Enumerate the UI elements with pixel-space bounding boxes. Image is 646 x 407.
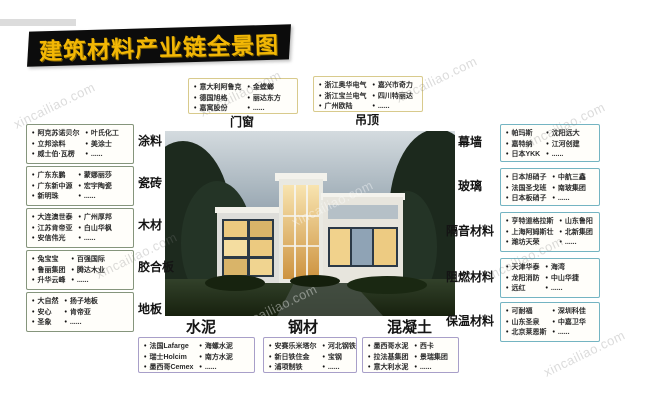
glass-box: •日本旭硝子•法国圣戈班•日本板硝子 •中航三鑫•南玻集团•...... [500,168,600,206]
company-name: 墨西哥水泥 [373,342,408,353]
company-item: •上海阿姆斯壮 [506,228,553,239]
company-item: •日本板硝子 [506,194,546,205]
bullet-icon: • [368,342,370,353]
ceiling-box: •浙江奥华电气•浙江宝兰电气•广州欧陆 •嘉兴市奇力•四川特丽达•...... [313,76,423,112]
bullet-icon: • [372,81,374,92]
bullet-icon: • [506,307,508,318]
company-item: •美涂士 [85,140,118,151]
company-item: •安心 [32,308,58,319]
category-label-coatings: 涂料 [138,132,162,149]
company-item: •远红 [506,284,539,295]
company-item: •广州厚邦 [78,213,111,224]
company-list: •海湾•中山华捷•...... [545,263,578,295]
company-list: •兔宝宝•鲁丽集团•升华云峰 [32,255,65,287]
bullet-icon: • [506,150,508,161]
company-list: •沈阳远大•江河创建•...... [546,129,579,161]
company-item: •深圳科佳 [552,307,585,318]
bullet-icon: • [78,182,80,193]
bullet-icon: • [269,342,271,353]
bullet-icon: • [368,353,370,364]
bullet-icon: • [552,194,554,205]
bullet-icon: • [545,274,547,285]
company-name: ...... [77,276,89,287]
company-list: •可耐福•山东圣泉•北京莱恩斯 [506,307,546,339]
company-name: ...... [84,234,96,245]
company-name: 瑞士Holcim [149,353,186,364]
company-item: •...... [78,234,111,245]
company-name: 浙江宝兰电气 [324,92,366,103]
bullet-icon: • [71,255,73,266]
company-name: 浦项制铁 [274,363,302,374]
plywood-box: •兔宝宝•鲁丽集团•升华云峰 •百强国际•腾达木业•...... [26,250,134,290]
company-name: 法国圣戈班 [511,184,546,195]
company-item: •安赛乐米塔尔 [269,342,316,353]
bullet-icon: • [506,228,508,239]
company-list: •西卡•景瑞集团•...... [414,342,447,374]
bullet-icon: • [559,228,561,239]
company-name: 浙江奥华电气 [324,81,366,92]
company-item: •...... [559,238,592,249]
bullet-icon: • [552,328,554,339]
bullet-icon: • [414,363,416,374]
company-list: •法国Lafarge•瑞士Holcim•墨西哥Cemex [144,342,193,374]
company-item: •...... [545,284,578,295]
company-name: 江河创建 [552,140,580,151]
bullet-icon: • [269,353,271,364]
flooring-box: •大自然•安心•圣象 •扬子地板•肯帝亚•...... [26,292,134,332]
bullet-icon: • [552,184,554,195]
bullet-icon: • [506,318,508,329]
category-label-flooring: 地板 [138,300,162,317]
company-item: •河北钢铁 [322,342,355,353]
bullet-icon: • [78,224,80,235]
company-item: •宏宇陶瓷 [78,182,111,193]
company-item: •墨西哥水泥 [368,342,408,353]
company-name: 兔宝宝 [37,255,58,266]
company-item: •瑞士Holcim [144,353,193,364]
bullet-icon: • [368,363,370,374]
company-item: •墨西哥Cemex [144,363,193,374]
company-item: •可耐福 [506,307,546,318]
company-item: •兔宝宝 [32,255,65,266]
company-name: 蒙娜丽莎 [84,171,112,182]
company-item: •扬子地板 [64,297,97,308]
bullet-icon: • [322,363,324,374]
company-name: ...... [558,328,570,339]
category-label-tiles: 瓷砖 [138,174,162,191]
company-name: 腾达木业 [77,266,105,277]
bullet-icon: • [559,238,561,249]
company-list: •嘉兴市奇力•四川特丽达•...... [372,81,412,113]
company-name: 可耐福 [511,307,532,318]
bullet-icon: • [32,140,34,151]
company-list: •大自然•安心•圣象 [32,297,58,329]
company-item: •...... [78,192,111,203]
company-item: •阿克苏诺贝尔 [32,129,79,140]
company-name: 宝钢 [328,353,342,364]
category-label-ceiling: 吊顶 [355,111,379,128]
company-name: 南玻集团 [558,184,586,195]
company-name: 意大利阿鲁克 [199,83,241,94]
company-item: •...... [546,150,579,161]
wood-box: •大连澳世泰•江苏肯帝亚•安信伟光 •广州厚邦•白山华枫•...... [26,208,134,248]
company-name: 宏宇陶瓷 [84,182,112,193]
company-name: ...... [91,150,103,161]
bullet-icon: • [71,276,73,287]
bullet-icon: • [506,184,508,195]
bullet-icon: • [78,234,80,245]
company-name: 海螺水泥 [205,342,233,353]
company-item: •...... [64,318,97,329]
company-name: 沈阳远大 [552,129,580,140]
company-item: •拉法基集团 [368,353,408,364]
company-list: •金螳螂•丽达东方•...... [247,83,280,115]
company-name: 南方水泥 [205,353,233,364]
company-name: 北新集团 [565,228,593,239]
company-name: 新明珠 [37,192,58,203]
company-item: •立邦涂料 [32,140,79,151]
company-item: •意大利阿鲁克 [194,83,241,94]
company-name: 安心 [37,308,51,319]
bullet-icon: • [199,342,201,353]
company-name: 圣象 [37,318,51,329]
bullet-icon: • [64,308,66,319]
company-item: •意大利水泥 [368,363,408,374]
company-item: •德国旭格 [194,94,241,105]
company-name: 安信伟光 [37,234,65,245]
bullet-icon: • [372,92,374,103]
bullet-icon: • [32,308,34,319]
bullet-icon: • [506,217,508,228]
company-item: •嘉特纳 [506,140,540,151]
company-item: •中嘉卫华 [552,318,585,329]
bullet-icon: • [32,224,34,235]
bullet-icon: • [414,353,416,364]
company-name: 嘉寓股份 [199,104,227,115]
company-list: •大连澳世泰•江苏肯帝亚•安信伟光 [32,213,72,245]
company-name: 潍坊天荣 [511,238,539,249]
company-item: •广东东鹏 [32,171,72,182]
company-list: •广州厚邦•白山华枫•...... [78,213,111,245]
steel-box: •安赛乐米塔尔•新日铁住金•浦项制铁 •河北钢铁•宝钢•...... [263,337,357,373]
bullet-icon: • [506,194,508,205]
bullet-icon: • [545,284,547,295]
company-name: 升华云峰 [37,276,65,287]
bullet-icon: • [71,266,73,277]
company-item: •广东新中源 [32,182,72,193]
company-item: •百强国际 [71,255,104,266]
company-name: ...... [328,363,340,374]
company-name: 德国旭格 [199,94,227,105]
bullet-icon: • [552,318,554,329]
company-name: 立邦涂料 [37,140,65,151]
company-name: 嘉兴市奇力 [378,81,413,92]
company-list: •帕玛斯•嘉特纳•日本YKK [506,129,540,161]
category-label-cement: 水泥 [186,316,216,337]
company-name: 上海阿姆斯壮 [511,228,553,239]
page-title: 建筑材料产业链全景图 [39,25,280,66]
bullet-icon: • [506,140,508,151]
bullet-icon: • [247,83,249,94]
company-item: •江苏肯帝亚 [32,224,72,235]
company-item: •山东圣泉 [506,318,546,329]
bullet-icon: • [559,217,561,228]
company-name: ...... [378,102,390,113]
company-name: ...... [253,104,265,115]
company-item: •法国圣戈班 [506,184,546,195]
company-name: ...... [84,192,96,203]
company-name: ...... [565,238,577,249]
bullet-icon: • [546,150,548,161]
company-name: 新日铁住金 [274,353,309,364]
category-label-concrete: 混凝土 [387,316,432,337]
company-item: •安信伟光 [32,234,72,245]
company-name: 中山华捷 [551,274,579,285]
bullet-icon: • [552,307,554,318]
company-item: •威士伯·瓦楞 [32,150,79,161]
company-name: 河北钢铁 [328,342,356,353]
category-label-glass: 玻璃 [458,177,482,194]
company-item: •...... [552,194,585,205]
company-item: •...... [71,276,104,287]
company-item: •...... [199,363,232,374]
company-item: •南玻集团 [552,184,585,195]
company-item: •沈阳远大 [546,129,579,140]
category-label-plywood: 胶合板 [138,258,174,275]
bullet-icon: • [319,102,321,113]
company-name: 大连澳世泰 [37,213,72,224]
category-label-steel: 钢材 [288,316,318,337]
company-item: •西卡 [414,342,447,353]
title-banner: 建筑材料产业链全景图 [27,24,291,66]
company-list: •百强国际•腾达木业•...... [71,255,104,287]
company-name: ...... [70,318,82,329]
bullet-icon: • [32,192,34,203]
bullet-icon: • [78,213,80,224]
company-item: •日本YKK [506,150,540,161]
company-list: •河北钢铁•宝钢•...... [322,342,355,374]
bullet-icon: • [319,81,321,92]
bullet-icon: • [322,342,324,353]
company-name: 叶氏化工 [91,129,119,140]
company-name: 广东东鹏 [37,171,65,182]
company-item: •北新集团 [559,228,592,239]
bullet-icon: • [144,363,146,374]
company-name: 墨西哥Cemex [149,363,193,374]
doors-windows-box: •意大利阿鲁克•德国旭格•嘉寓股份 •金螳螂•丽达东方•...... [188,78,298,114]
bullet-icon: • [32,171,34,182]
bullet-icon: • [194,94,196,105]
bullet-icon: • [32,318,34,329]
company-name: 百强国际 [77,255,105,266]
company-name: 意大利水泥 [373,363,408,374]
company-item: •龙阳消防 [506,274,539,285]
company-name: 日本YKK [511,150,540,161]
company-name: 日本旭硝子 [511,173,546,184]
company-item: •景瑞集团 [414,353,447,364]
company-list: •亨特道格拉斯•上海阿姆斯壮•潍坊天荣 [506,217,553,249]
company-item: •法国Lafarge [144,342,193,353]
company-item: •海湾 [545,263,578,274]
category-label-flame-retardant: 阻燃材料 [446,268,494,285]
company-item: •亨特道格拉斯 [506,217,553,228]
bullet-icon: • [32,234,34,245]
company-name: ...... [420,363,432,374]
bullet-icon: • [85,150,87,161]
company-item: •帕玛斯 [506,129,540,140]
company-item: •山东鲁阳 [559,217,592,228]
house-illustration [165,131,455,316]
company-name: ...... [551,284,563,295]
bullet-icon: • [32,182,34,193]
bullet-icon: • [506,284,508,295]
bullet-icon: • [78,192,80,203]
company-item: •...... [85,150,118,161]
company-name: 白山华枫 [84,224,112,235]
company-item: •北京莱恩斯 [506,328,546,339]
company-item: •江河创建 [546,140,579,151]
company-name: 威士伯·瓦楞 [37,150,74,161]
bullet-icon: • [32,266,34,277]
bullet-icon: • [269,363,271,374]
building-photo [165,131,455,316]
company-name: 阿克苏诺贝尔 [37,129,79,140]
company-item: •...... [322,363,355,374]
company-name: 拉法基集团 [373,353,408,364]
company-item: •天津华泰 [506,263,539,274]
company-name: 安赛乐米塔尔 [274,342,316,353]
category-label-curtain-wall: 幕墙 [458,133,482,150]
thermal-insulation-box: •可耐福•山东圣泉•北京莱恩斯 •深圳科佳•中嘉卫华•...... [500,302,600,342]
bullet-icon: • [144,342,146,353]
bullet-icon: • [32,213,34,224]
company-item: •鲁丽集团 [32,266,65,277]
company-item: •...... [552,328,585,339]
coatings-box: •阿克苏诺贝尔•立邦涂料•威士伯·瓦楞 •叶氏化工•美涂士•...... [26,124,134,164]
bullet-icon: • [32,276,34,287]
company-name: 亨特道格拉斯 [511,217,553,228]
bullet-icon: • [64,297,66,308]
company-name: 金螳螂 [253,83,274,94]
company-item: •中山华捷 [545,274,578,285]
company-name: 西卡 [420,342,434,353]
bullet-icon: • [32,150,34,161]
company-list: •中航三鑫•南玻集团•...... [552,173,585,205]
company-name: 远红 [511,284,525,295]
company-name: 山东圣泉 [511,318,539,329]
company-name: 大自然 [37,297,58,308]
company-name: 江苏肯帝亚 [37,224,72,235]
concrete-box: •墨西哥水泥•拉法基集团•意大利水泥 •西卡•景瑞集团•...... [362,337,459,373]
company-item: •潍坊天荣 [506,238,553,249]
bullet-icon: • [194,83,196,94]
bullet-icon: • [506,274,508,285]
company-item: •浦项制铁 [269,363,316,374]
bullet-icon: • [319,92,321,103]
company-list: •叶氏化工•美涂士•...... [85,129,118,161]
curtain-wall-box: •帕玛斯•嘉特纳•日本YKK •沈阳远大•江河创建•...... [500,124,600,162]
company-list: •安赛乐米塔尔•新日铁住金•浦项制铁 [269,342,316,374]
bullet-icon: • [32,129,34,140]
sound-insulation-box: •亨特道格拉斯•上海阿姆斯壮•潍坊天荣 •山东鲁阳•北新集团•...... [500,212,600,252]
company-item: •新明珠 [32,192,72,203]
company-item: •四川特丽达 [372,92,412,103]
company-item: •南方水泥 [199,353,232,364]
bullet-icon: • [199,363,201,374]
company-name: 广东新中源 [37,182,72,193]
company-name: 广州厚邦 [84,213,112,224]
company-item: •丽达东方 [247,94,280,105]
company-name: 肯帝亚 [70,308,91,319]
bullet-icon: • [247,94,249,105]
company-item: •升华云峰 [32,276,65,287]
company-name: 海湾 [551,263,565,274]
bullet-icon: • [85,129,87,140]
company-item: •嘉兴市奇力 [372,81,412,92]
company-item: •圣象 [32,318,58,329]
company-list: •阿克苏诺贝尔•立邦涂料•威士伯·瓦楞 [32,129,79,161]
company-name: 扬子地板 [70,297,98,308]
company-list: •扬子地板•肯帝亚•...... [64,297,97,329]
company-name: 嘉特纳 [511,140,532,151]
flame-retardant-box: •天津华泰•龙阳消防•远红 •海湾•中山华捷•...... [500,258,600,298]
company-item: •金螳螂 [247,83,280,94]
category-label-thermal-insulation: 保温材料 [446,312,494,329]
category-label-wood: 木材 [138,216,162,233]
company-item: •腾达木业 [71,266,104,277]
company-name: 天津华泰 [511,263,539,274]
company-name: 法国Lafarge [149,342,188,353]
company-item: •叶氏化工 [85,129,118,140]
company-item: •宝钢 [322,353,355,364]
company-item: •浙江宝兰电气 [319,92,366,103]
company-item: •大自然 [32,297,58,308]
company-name: 景瑞集团 [420,353,448,364]
company-name: 美涂士 [91,140,112,151]
company-item: •蒙娜丽莎 [78,171,111,182]
company-name: 中嘉卫华 [558,318,586,329]
bullet-icon: • [506,238,508,249]
company-item: •白山华枫 [78,224,111,235]
cement-box: •法国Lafarge•瑞士Holcim•墨西哥Cemex •海螺水泥•南方水泥•… [138,337,255,373]
company-item: •大连澳世泰 [32,213,72,224]
bullet-icon: • [545,263,547,274]
company-list: •海螺水泥•南方水泥•...... [199,342,232,374]
bullet-icon: • [32,297,34,308]
bullet-icon: • [78,171,80,182]
bullet-icon: • [414,342,416,353]
company-list: •深圳科佳•中嘉卫华•...... [552,307,585,339]
company-list: •广东东鹏•广东新中源•新明珠 [32,171,72,203]
company-item: •中航三鑫 [552,173,585,184]
company-item: •浙江奥华电气 [319,81,366,92]
bullet-icon: • [199,353,201,364]
company-item: •新日铁住金 [269,353,316,364]
company-name: 中航三鑫 [558,173,586,184]
company-name: 广州欧陆 [324,102,352,113]
company-list: •墨西哥水泥•拉法基集团•意大利水泥 [368,342,408,374]
category-label-sound-insulation: 隔音材料 [446,222,494,239]
bullet-icon: • [506,129,508,140]
company-name: ...... [205,363,217,374]
bullet-icon: • [546,129,548,140]
company-item: •日本旭硝子 [506,173,546,184]
company-name: 丽达东方 [253,94,281,105]
infographic-canvas: 建筑材料产业链全景图 [0,0,646,407]
bullet-icon: • [85,140,87,151]
company-name: 深圳科佳 [558,307,586,318]
top-edge-strip [0,19,76,26]
